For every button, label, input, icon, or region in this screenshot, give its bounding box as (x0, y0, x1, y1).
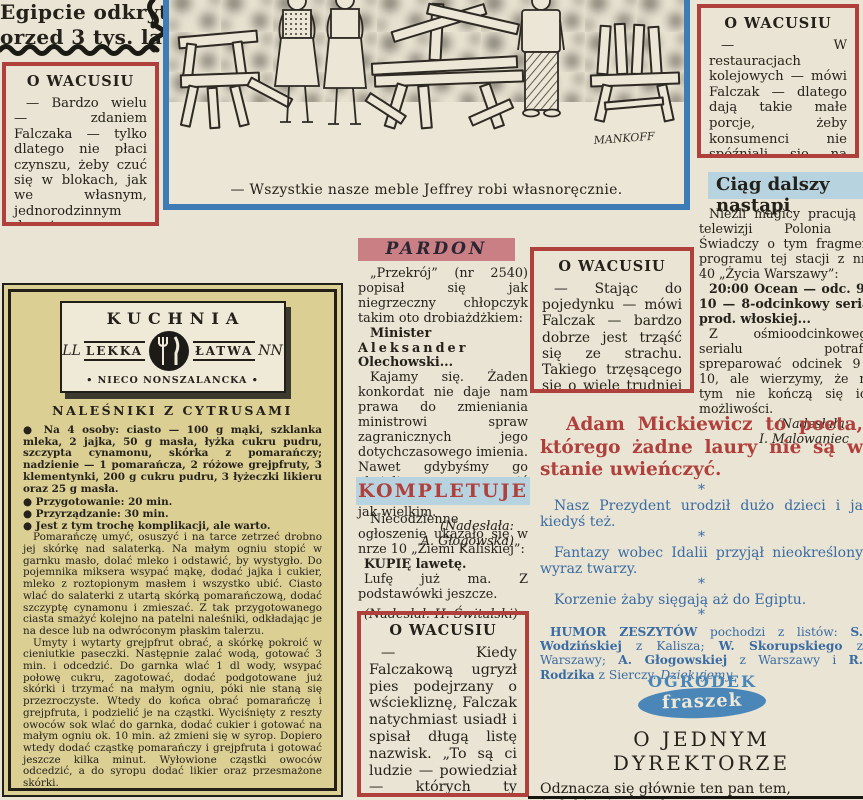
section-header-pardon: PARDON (358, 238, 515, 261)
recipe-bullet: ● Przyrządzanie: 30 min. (23, 509, 322, 521)
o-wacusiu-box-bottom-middle: O WACUSIU — Kiedy Falczakową ugryzł pies… (357, 611, 529, 797)
box-title: O WACUSIU (542, 258, 682, 275)
recipe-paragraph: Umyty i wytarty grejpfrut obrać, a skórk… (23, 638, 322, 790)
bottom-divider-rule (528, 796, 863, 799)
ogrodek-fraszek-logo: OGRÓDEK fraszek (620, 672, 785, 718)
kuchnia-logo-card: KUCHNIA LL LEKKA (60, 301, 286, 393)
cartoon-panel: MANKOFF — Wszystkie nasze meble Jeffrey … (163, 0, 690, 210)
box-text: — W restauracjach kolejowych — mówi Falc… (709, 38, 847, 158)
cartoon-woman-2 (324, 0, 366, 124)
o-wacusiu-box-top-right: O WACUSIU — W restauracjach kolejowych —… (697, 4, 859, 158)
kompletuje-article: Niecodzienne ogłoszenie ukazało się w nr… (358, 513, 528, 623)
article-paragraph: Nieźli magicy pracują w telewizji Poloni… (699, 206, 863, 281)
kuchnia-tagline: • NIECO NONSZALANCKA • (66, 375, 280, 386)
article-paragraph: Z ośmioodcinkowego serialu potrafili spr… (699, 326, 863, 416)
aphorism-line: * (540, 578, 863, 591)
section-header-kompletuje: KOMPLETUJE (356, 477, 530, 505)
o-wacusiu-box-right-middle: O WACUSIU — Stając do pojedynku — mówi F… (530, 247, 694, 393)
recipe-instructions: Pomarańczę umyć, osuszyć i na tarce zetr… (23, 532, 322, 791)
minister-line: Minister Aleksander Olechowski... (358, 327, 528, 372)
recipe-paragraph: Naleśniki wypełnić cząstkami owoców i zł… (23, 790, 322, 791)
cartoon-caption: — Wszystkie nasze meble Jeffrey robi wła… (169, 182, 684, 198)
newspaper-page: Egipcie odkryto orzed 3 tys. lat. O WACU… (0, 0, 863, 800)
aphorism-list: *Nasz Prezydent urodził dużo dzieci i ja… (540, 484, 863, 622)
credit-segment: W. Skorupskiego (719, 639, 843, 653)
credit-segment: A. Głogowskiej (618, 653, 727, 667)
article-paragraph: „Przekrój” (nr 2540) popisał się jak nie… (358, 267, 528, 327)
ad-headline: KUPIĘ lawetę. (358, 558, 528, 573)
credit-segment: z Kalisza; (622, 639, 719, 653)
box-text: — Stając do pojedynku — mówi Falczak — b… (542, 281, 682, 393)
pardon-article: „Przekrój” (nr 2540) popisał się jak nie… (358, 267, 528, 550)
ciag-dalszy-article: Nieźli magicy pracują w telewizji Poloni… (699, 206, 863, 446)
kuchnia-word-lekka: LEKKA (84, 341, 145, 361)
box-text: — Bardzo wielu — zdaniem Falczaka — tylk… (14, 96, 147, 226)
recipe-inner-frame: KUCHNIA LL LEKKA (8, 289, 337, 791)
script-monogram-right: NN (258, 343, 283, 359)
section-header-ciag-dalszy: Ciąg dalszy nastąpi (708, 172, 863, 199)
cartoon-drawing: MANKOFF (169, 0, 684, 160)
aphorism-line: * (540, 609, 863, 622)
fraszka-article: O JEDNYM DYREKTORZE Odznacza się głównie… (540, 727, 863, 800)
box-title: O WACUSIU (14, 73, 147, 90)
kuchnia-word-latwa: ŁATWA (193, 341, 255, 361)
kuchnia-recipe-box: KUCHNIA LL LEKKA (2, 283, 343, 797)
o-wacusiu-box-left: O WACUSIU — Bardzo wielu — zdaniem Falcz… (2, 62, 159, 226)
recipe-ingredients: ● Na 4 osoby: ciasto — 100 g mąki, szkla… (23, 425, 322, 495)
kuchnia-title: KUCHNIA (66, 309, 280, 328)
humor-headline: Adam Mickiewicz to poeta, którego żadne … (540, 414, 863, 482)
credit-segment: z Warszawy i (727, 653, 848, 667)
fork-knife-icon (148, 330, 190, 372)
humor-aphorisms: *Nasz Prezydent urodził dużo dzieci i ja… (540, 483, 863, 682)
credit-segment: pochodzi z listów: (697, 625, 850, 639)
box-title: O WACUSIU (709, 15, 847, 32)
box-text: — Kiedy Falczakową ugryzł pies podejrzan… (369, 645, 517, 797)
aphorism-line: Korzenie żaby sięgają aż do Egiptu. (540, 592, 863, 608)
recipe-bullets: ● Przygotowanie: 20 min.● Przyrządzanie:… (23, 497, 322, 532)
aphorism-line: Nasz Prezydent urodził dużo dzieci i ja … (540, 498, 863, 530)
cartoon-signature: MANKOFF (592, 130, 655, 147)
aphorism-line: Fantazy wobec Idalii przyjął nieokreślon… (540, 545, 863, 577)
aphorism-line: * (540, 484, 863, 497)
kuchnia-logo-row: LL LEKKA ŁATWA NN (66, 330, 280, 372)
article-paragraph: 20:00 Ocean — odc. 9 i 10 — 8-odcinkowy … (699, 281, 863, 326)
credit-segment: HUMOR ZESZYTÓW (550, 625, 697, 639)
aphorism-line: * (540, 531, 863, 544)
script-monogram-left: LL (62, 343, 81, 359)
logo-text-fraszek: fraszek (638, 686, 767, 720)
recipe-title: NALEŚNIKI Z CYTRUSAMI (23, 403, 322, 418)
fraszka-title: O JEDNYM DYREKTORZE (540, 727, 863, 775)
cartoon-man (518, 0, 564, 117)
recipe-paragraph: Pomarańczę umyć, osuszyć i na tarce zetr… (23, 532, 322, 637)
wavy-border-decoration (0, 0, 172, 60)
article-paragraph: Niecodzienne ogłoszenie ukazało się w nr… (358, 513, 528, 558)
box-title: O WACUSIU (369, 622, 517, 639)
ad-body: Lufę już ma. Z podstawówki jeszcze. (358, 573, 528, 603)
